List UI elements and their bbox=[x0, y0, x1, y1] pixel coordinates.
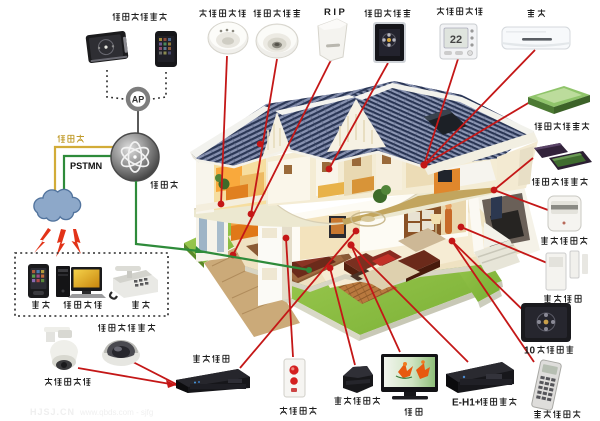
svg-text:PSTMN: PSTMN bbox=[70, 161, 103, 171]
svg-text:22: 22 bbox=[450, 34, 462, 46]
svg-text:HJSJ.CN: HJSJ.CN bbox=[30, 407, 75, 417]
svg-text:10: 10 bbox=[524, 346, 536, 357]
svg-text:E-H1+: E-H1+ bbox=[452, 398, 481, 409]
svg-text:RIP: RIP bbox=[324, 7, 347, 18]
svg-text:www.qbds.com - sjfg: www.qbds.com - sjfg bbox=[79, 408, 153, 417]
svg-text:AP: AP bbox=[132, 95, 145, 105]
